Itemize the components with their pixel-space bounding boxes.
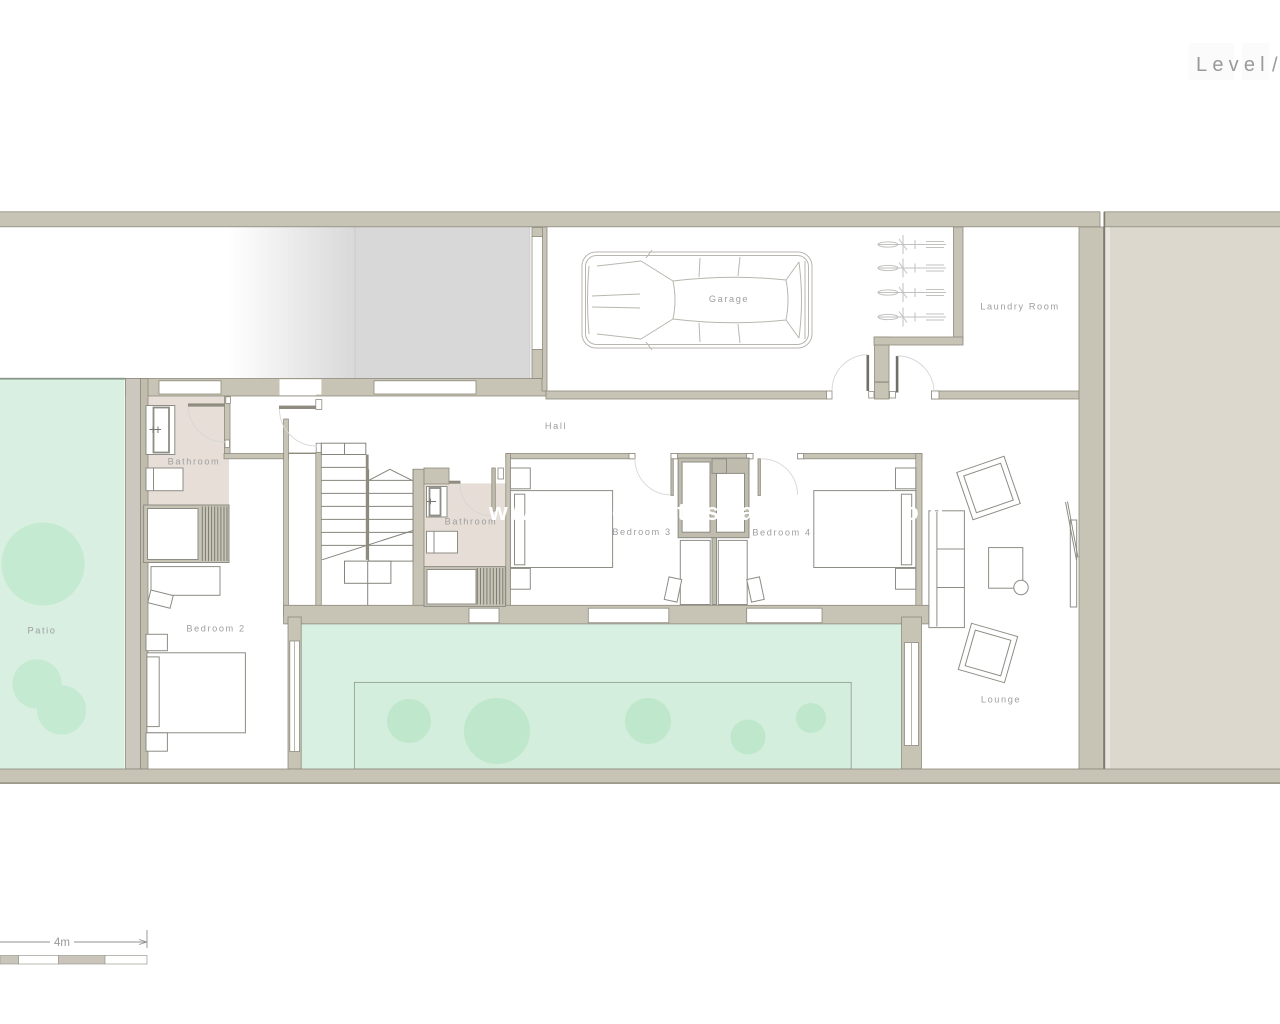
svg-text:Bathroom: Bathroom: [168, 457, 221, 467]
svg-text:/: /: [1272, 55, 1278, 77]
svg-text:www.apropertyspain-villas.com: www.apropertyspain-villas.com: [488, 499, 947, 526]
svg-text:Laundry Room: Laundry Room: [980, 302, 1059, 312]
svg-text:Bedroom 3: Bedroom 3: [612, 527, 671, 537]
svg-text:Level: Level: [1196, 54, 1270, 76]
svg-text:Garage: Garage: [709, 294, 749, 304]
svg-text:Bedroom 2: Bedroom 2: [186, 624, 245, 634]
svg-text:Bedroom 4: Bedroom 4: [752, 528, 811, 538]
svg-text:Hall: Hall: [545, 421, 567, 431]
svg-text:4m: 4m: [54, 937, 70, 949]
svg-text:Patio: Patio: [28, 626, 57, 636]
svg-text:Lounge: Lounge: [981, 695, 1021, 705]
